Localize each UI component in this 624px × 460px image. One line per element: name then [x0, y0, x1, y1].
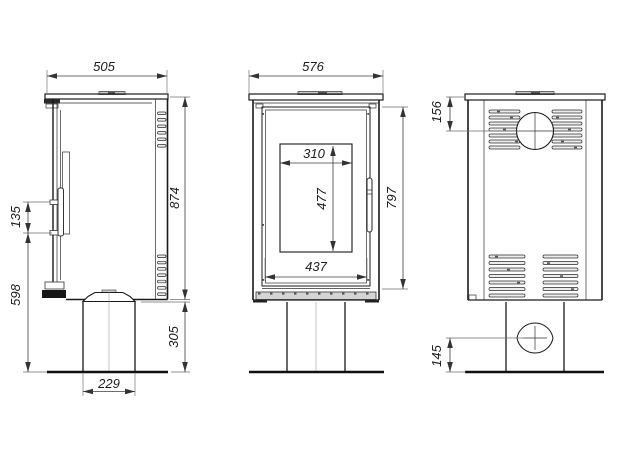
dim-side-total-height-value: 874	[167, 187, 182, 209]
dim-side-handle-height-value: 598	[8, 283, 23, 305]
back-view: 156 145	[429, 92, 605, 373]
dim-front-door-width: 437	[265, 258, 367, 281]
dim-side-pedestal-width-value: 229	[97, 376, 120, 391]
dim-side-total-height: 874	[167, 97, 190, 300]
front-top-plate	[249, 94, 383, 100]
dim-front-glass-width: 310	[280, 146, 352, 163]
dim-back-air-inlet-position: 145	[429, 338, 529, 372]
side-view: 505 874 135 598 305	[8, 59, 190, 396]
back-top-plate	[465, 94, 605, 100]
dim-front-glass-width-value: 310	[303, 146, 325, 161]
dim-front-width-value: 576	[302, 59, 324, 74]
dim-side-handle-length: 135	[8, 202, 52, 233]
dim-side-pedestal-height: 305	[141, 302, 190, 372]
dim-side-pedestal-width: 229	[83, 374, 135, 397]
dim-side-depth-value: 505	[93, 59, 115, 74]
front-door-handle	[367, 178, 372, 232]
side-door-bottom-frame	[45, 282, 64, 289]
dim-back-flue-position: 156	[429, 97, 530, 131]
dim-side-pedestal-height-value: 305	[166, 325, 181, 347]
dim-front-glass-height-value: 477	[314, 187, 329, 209]
dim-back-flue-position-value: 156	[429, 100, 444, 122]
drawing-canvas: 505 874 135 598 305	[0, 0, 624, 460]
dim-front-body-height-value: 797	[384, 186, 399, 208]
side-vent-slots	[158, 112, 167, 296]
front-pedestal	[287, 302, 345, 372]
dim-side-handle-length-value: 135	[8, 205, 23, 227]
dim-front-door-width-value: 437	[305, 259, 327, 274]
dim-side-depth: 505	[47, 59, 167, 93]
dim-side-handle-height: 598	[8, 233, 47, 372]
side-door-bottom-strip	[42, 290, 66, 298]
technical-drawing-stove-three-views: 505 874 135 598 305	[0, 0, 624, 460]
back-vent-slots-bottom	[489, 255, 578, 297]
side-pedestal	[83, 290, 135, 372]
dim-back-air-inlet-position-value: 145	[429, 344, 444, 366]
side-body-outline	[53, 99, 168, 300]
dim-front-glass-height: 477	[314, 146, 333, 251]
dim-front-width: 576	[249, 59, 383, 93]
dim-front-body-height: 797	[382, 107, 408, 289]
front-view: 576 310 477 437 797	[249, 59, 408, 372]
